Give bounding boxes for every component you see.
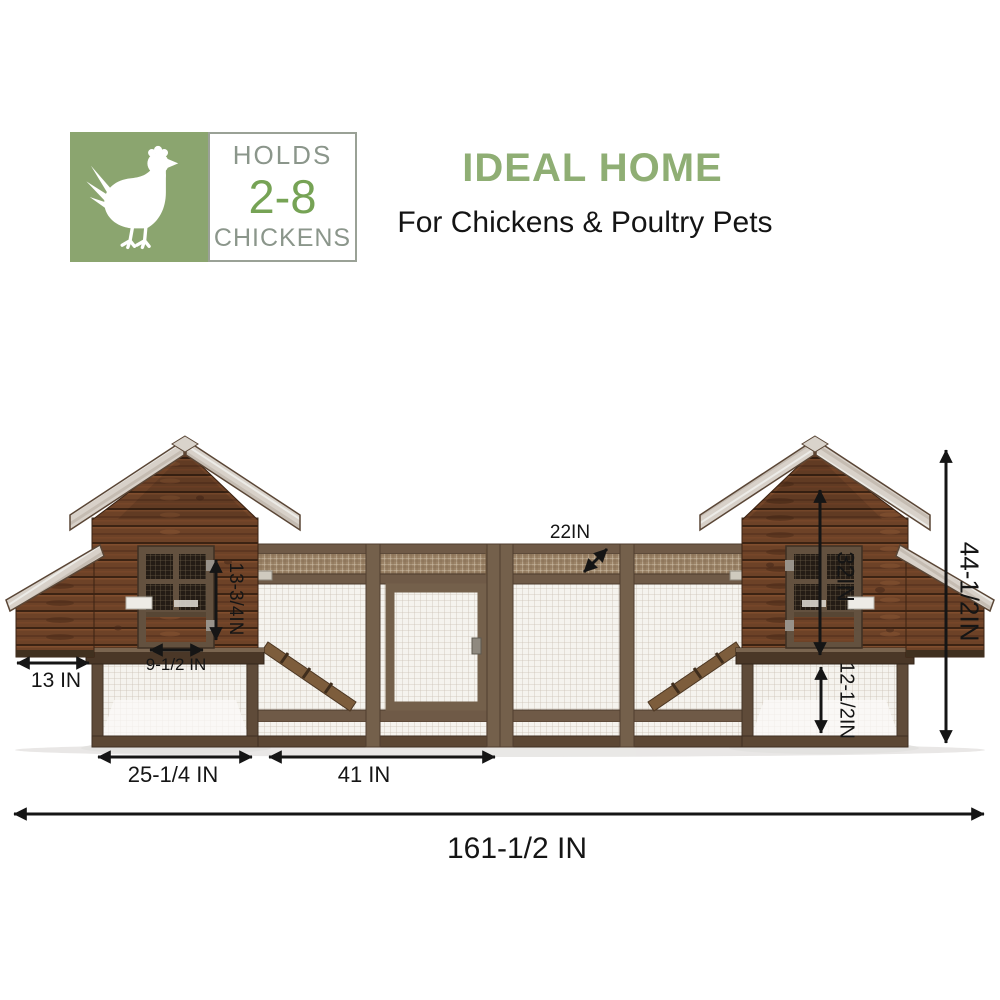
run-door-latch [472, 638, 481, 654]
dim-label-overall-length: 161-1/2 IN [357, 833, 677, 865]
left-door-latch [126, 597, 152, 609]
right-house-door [785, 546, 874, 648]
product-infographic: HOLDS 2-8 CHICKENS IDEAL HOME For Chicke… [0, 0, 1000, 1000]
dim-label-run-depth: 22IN [536, 523, 604, 543]
left-house-door [126, 546, 215, 648]
dim-label-overall-height: 44-1/2IN [955, 525, 982, 659]
dim-label-lower-run-height: 12-1/2IN [836, 653, 857, 749]
left-nesting-box [6, 545, 104, 657]
dim-label-house-section-width: 25-1/4 IN [88, 763, 258, 786]
wire-mesh-run [256, 544, 746, 747]
dim-label-house-height: 32IN [832, 543, 857, 611]
dim-label-door-height: 13-3/4IN [225, 553, 245, 645]
dim-label-door-width: 9-1/2 IN [134, 656, 218, 674]
dim-label-run-section-width: 41 IN [278, 763, 450, 786]
left-hen-house [6, 436, 300, 747]
dim-label-nest-box-width: 13 IN [14, 670, 98, 692]
